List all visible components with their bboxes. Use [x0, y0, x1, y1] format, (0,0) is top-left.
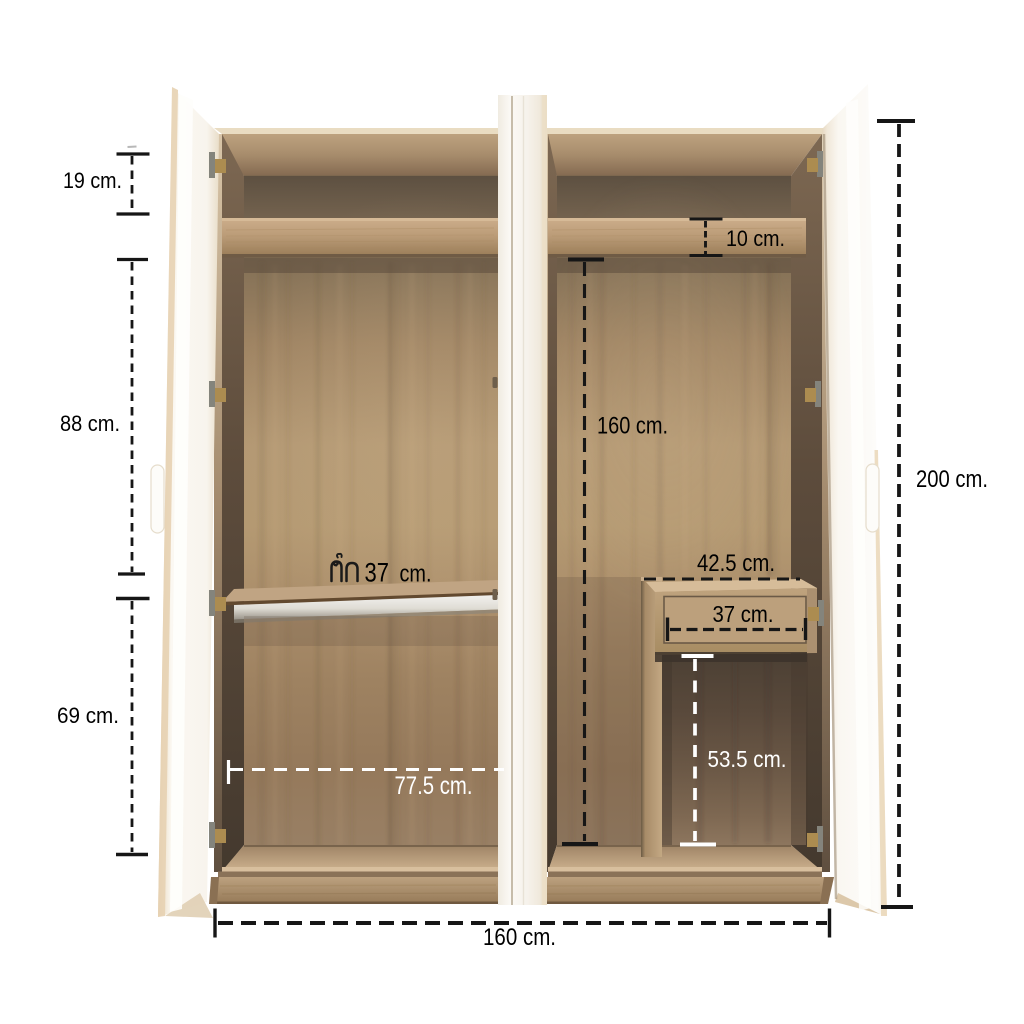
svg-text:10 cm.: 10 cm.: [726, 226, 785, 251]
svg-text:200 cm.: 200 cm.: [916, 466, 988, 493]
svg-text:69 cm.: 69 cm.: [57, 703, 119, 728]
svg-text:160 cm.: 160 cm.: [483, 924, 556, 951]
svg-text:37: 37: [365, 558, 390, 588]
svg-text:88 cm.: 88 cm.: [60, 411, 120, 436]
svg-text:42.5 cm.: 42.5 cm.: [697, 550, 775, 577]
svg-text:53.5 cm.: 53.5 cm.: [708, 746, 787, 772]
svg-text:cm.: cm.: [400, 561, 432, 588]
svg-text:160 cm.: 160 cm.: [597, 413, 668, 440]
svg-text:37 cm.: 37 cm.: [713, 601, 774, 627]
svg-text:19 cm.: 19 cm.: [63, 168, 122, 193]
svg-text:77.5 cm.: 77.5 cm.: [395, 772, 473, 800]
